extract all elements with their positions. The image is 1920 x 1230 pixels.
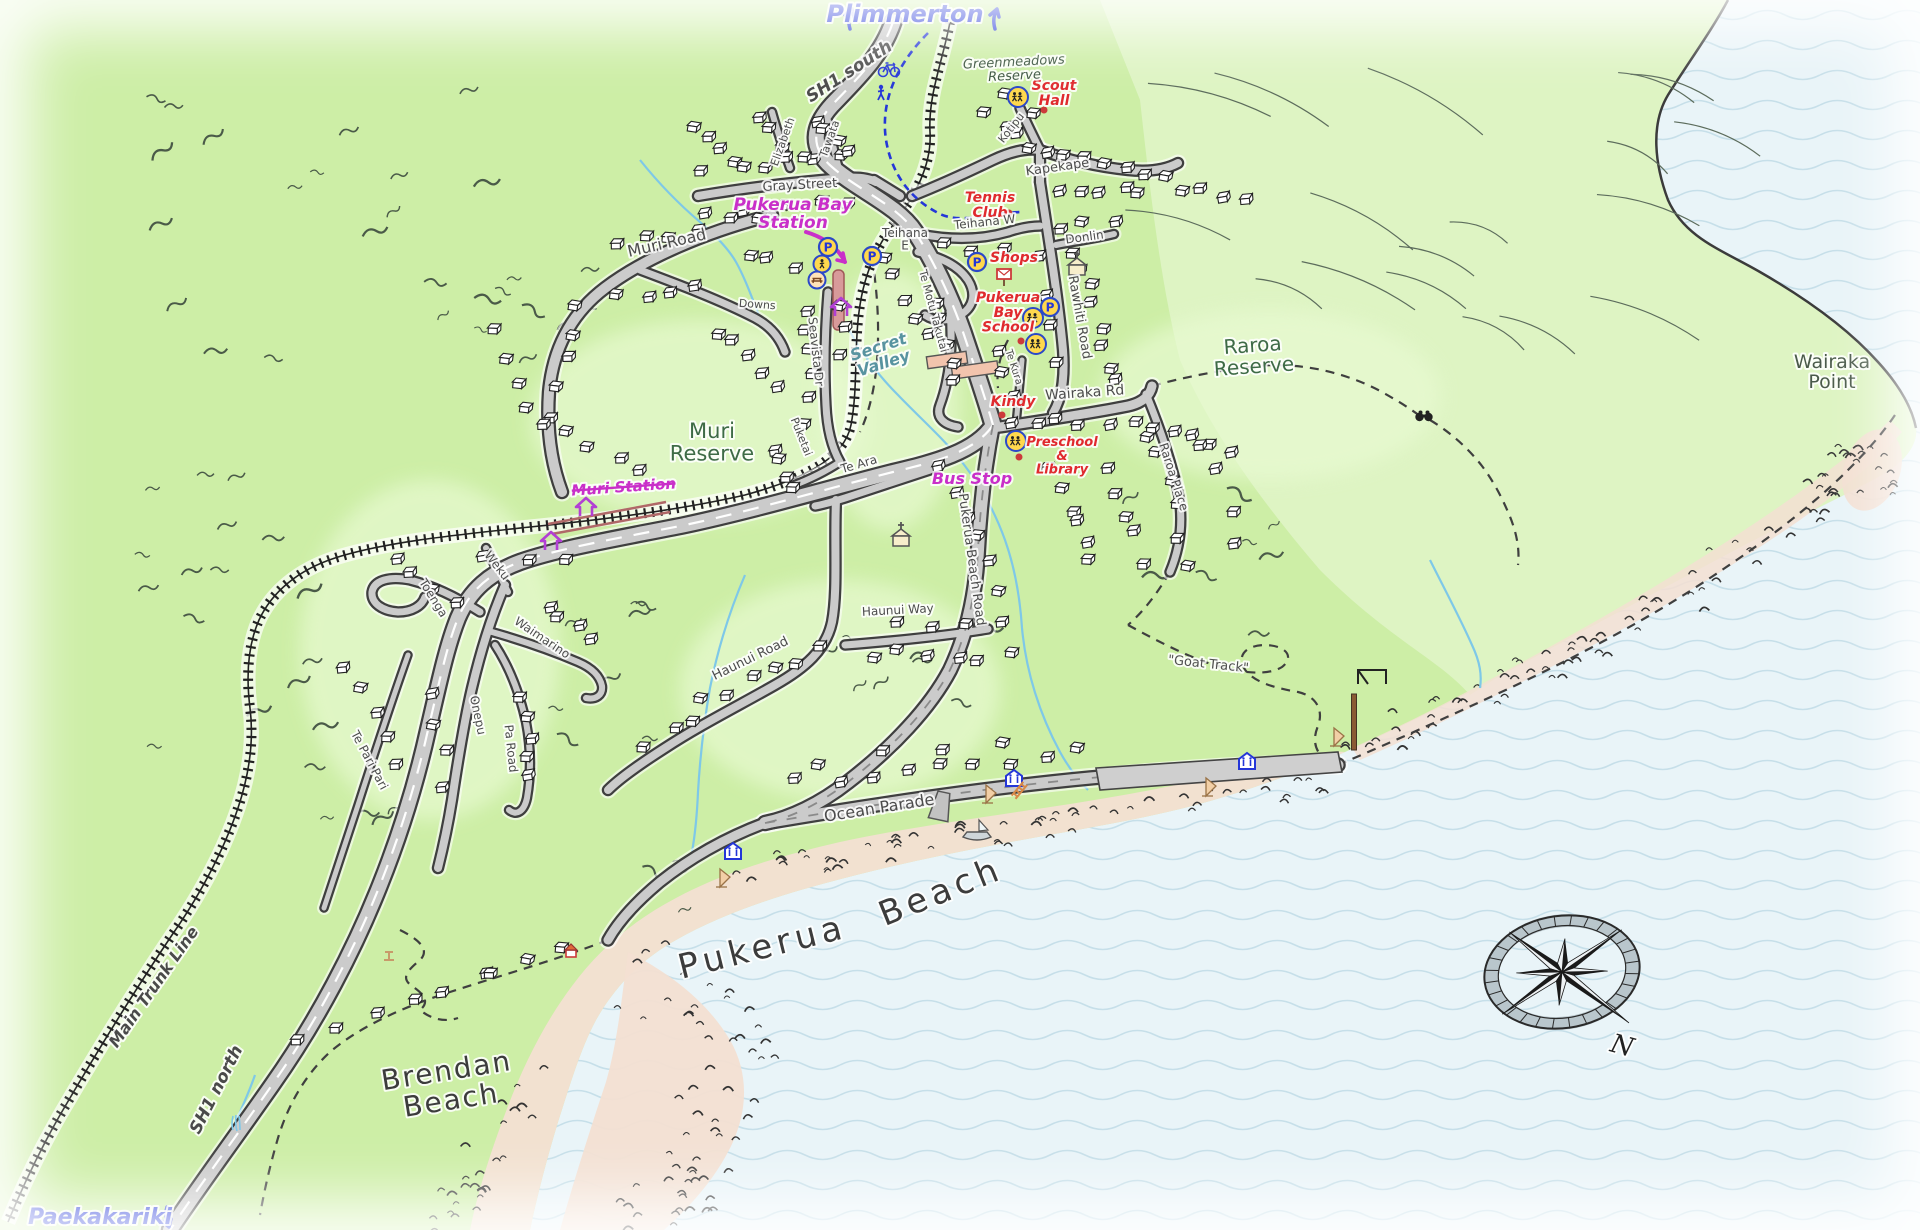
- dot-icon: [1016, 454, 1023, 461]
- house-symbol: [1170, 533, 1184, 543]
- school-icon: [1008, 87, 1028, 107]
- label-paekakariki: Paekakariki: [28, 1205, 172, 1230]
- svg-text:P: P: [1046, 301, 1055, 315]
- house-symbol: [1081, 554, 1095, 565]
- house-symbol: [802, 392, 816, 403]
- house-symbol: [1137, 559, 1151, 569]
- house-symbol: [946, 375, 960, 385]
- parking-icon: P: [863, 247, 881, 265]
- house-symbol: [290, 1035, 304, 1045]
- house-symbol: [747, 670, 761, 680]
- house-symbol: [694, 166, 708, 176]
- house-symbol: [801, 306, 815, 316]
- school-icon: [1026, 334, 1046, 354]
- house-symbol: [780, 472, 794, 482]
- house-symbol: [833, 350, 847, 360]
- house-symbol: [933, 758, 947, 768]
- house-symbol: [1193, 183, 1207, 193]
- label-downs: Downs: [738, 297, 776, 313]
- label-kindy: Kindy: [991, 394, 1037, 410]
- house-symbol: [615, 453, 629, 463]
- house-symbol: [483, 968, 497, 978]
- house-symbol: [789, 263, 803, 273]
- house-symbol: [1075, 186, 1089, 196]
- house-symbol: [685, 716, 699, 727]
- pukerua-bay-map: PPPP PlimmertonPaekakarikiSH1 southSH1 n…: [0, 0, 1920, 1230]
- house-symbol: [329, 1023, 343, 1033]
- house-symbol: [898, 296, 912, 306]
- house-symbol: [562, 351, 576, 361]
- house-symbol: [965, 759, 979, 769]
- school-icon: [1006, 431, 1026, 451]
- house-symbol: [970, 656, 984, 666]
- house-symbol: [813, 641, 827, 651]
- house-symbol: [513, 692, 527, 702]
- house-symbol: [389, 759, 403, 769]
- house-symbol: [1049, 357, 1063, 367]
- house-symbol: [636, 742, 650, 753]
- house-symbol: [936, 745, 950, 755]
- label-shops: Shops: [990, 250, 1038, 266]
- house-symbol: [1108, 488, 1122, 498]
- house-symbol: [797, 152, 811, 163]
- label-plimmerton: Plimmerton: [826, 0, 983, 28]
- house-symbol: [890, 617, 904, 627]
- house-symbol: [440, 745, 454, 755]
- house-symbol: [788, 773, 802, 784]
- house-symbol: [1070, 420, 1084, 430]
- house-symbol: [1032, 418, 1046, 429]
- house-symbol: [559, 554, 573, 564]
- house-symbol: [720, 690, 734, 700]
- house-symbol: [1048, 413, 1062, 424]
- house-symbol: [610, 239, 624, 249]
- house-symbol: [885, 268, 899, 279]
- picnic-icon: [809, 272, 826, 289]
- parking-icon: P: [1041, 298, 1059, 316]
- house-symbol: [408, 994, 422, 1004]
- house-symbol: [669, 723, 683, 733]
- house-symbol: [487, 324, 501, 334]
- crossing-icon: [814, 256, 831, 273]
- house-symbol: [522, 555, 536, 565]
- house-symbol: [702, 132, 716, 142]
- parking-icon: P: [819, 238, 837, 256]
- parking-icon: P: [968, 253, 986, 271]
- house-symbol: [403, 567, 417, 578]
- house-symbol: [876, 746, 890, 756]
- house-symbol: [1129, 416, 1143, 426]
- dot-icon: [999, 412, 1006, 419]
- house-symbol: [520, 751, 534, 761]
- svg-text:P: P: [973, 256, 982, 270]
- house-symbol: [1227, 507, 1241, 517]
- house-symbol: [725, 335, 739, 345]
- house-symbol: [786, 482, 800, 492]
- house-symbol: [550, 612, 564, 622]
- map-canvas: PPPP PlimmertonPaekakarikiSH1 southSH1 n…: [0, 0, 1920, 1230]
- house-symbol: [1094, 340, 1108, 351]
- svg-text:P: P: [824, 241, 833, 255]
- label-bus-stop: Bus Stop: [932, 469, 1012, 488]
- house-symbol: [937, 237, 951, 248]
- house-symbol: [1138, 169, 1152, 179]
- pole-icon: [1352, 694, 1357, 750]
- house-symbol: [450, 598, 464, 608]
- house-symbol: [381, 731, 395, 741]
- house-symbol: [1043, 320, 1057, 330]
- house-symbol: [537, 419, 551, 429]
- svg-text:P: P: [868, 250, 877, 264]
- dot-icon: [1018, 338, 1025, 345]
